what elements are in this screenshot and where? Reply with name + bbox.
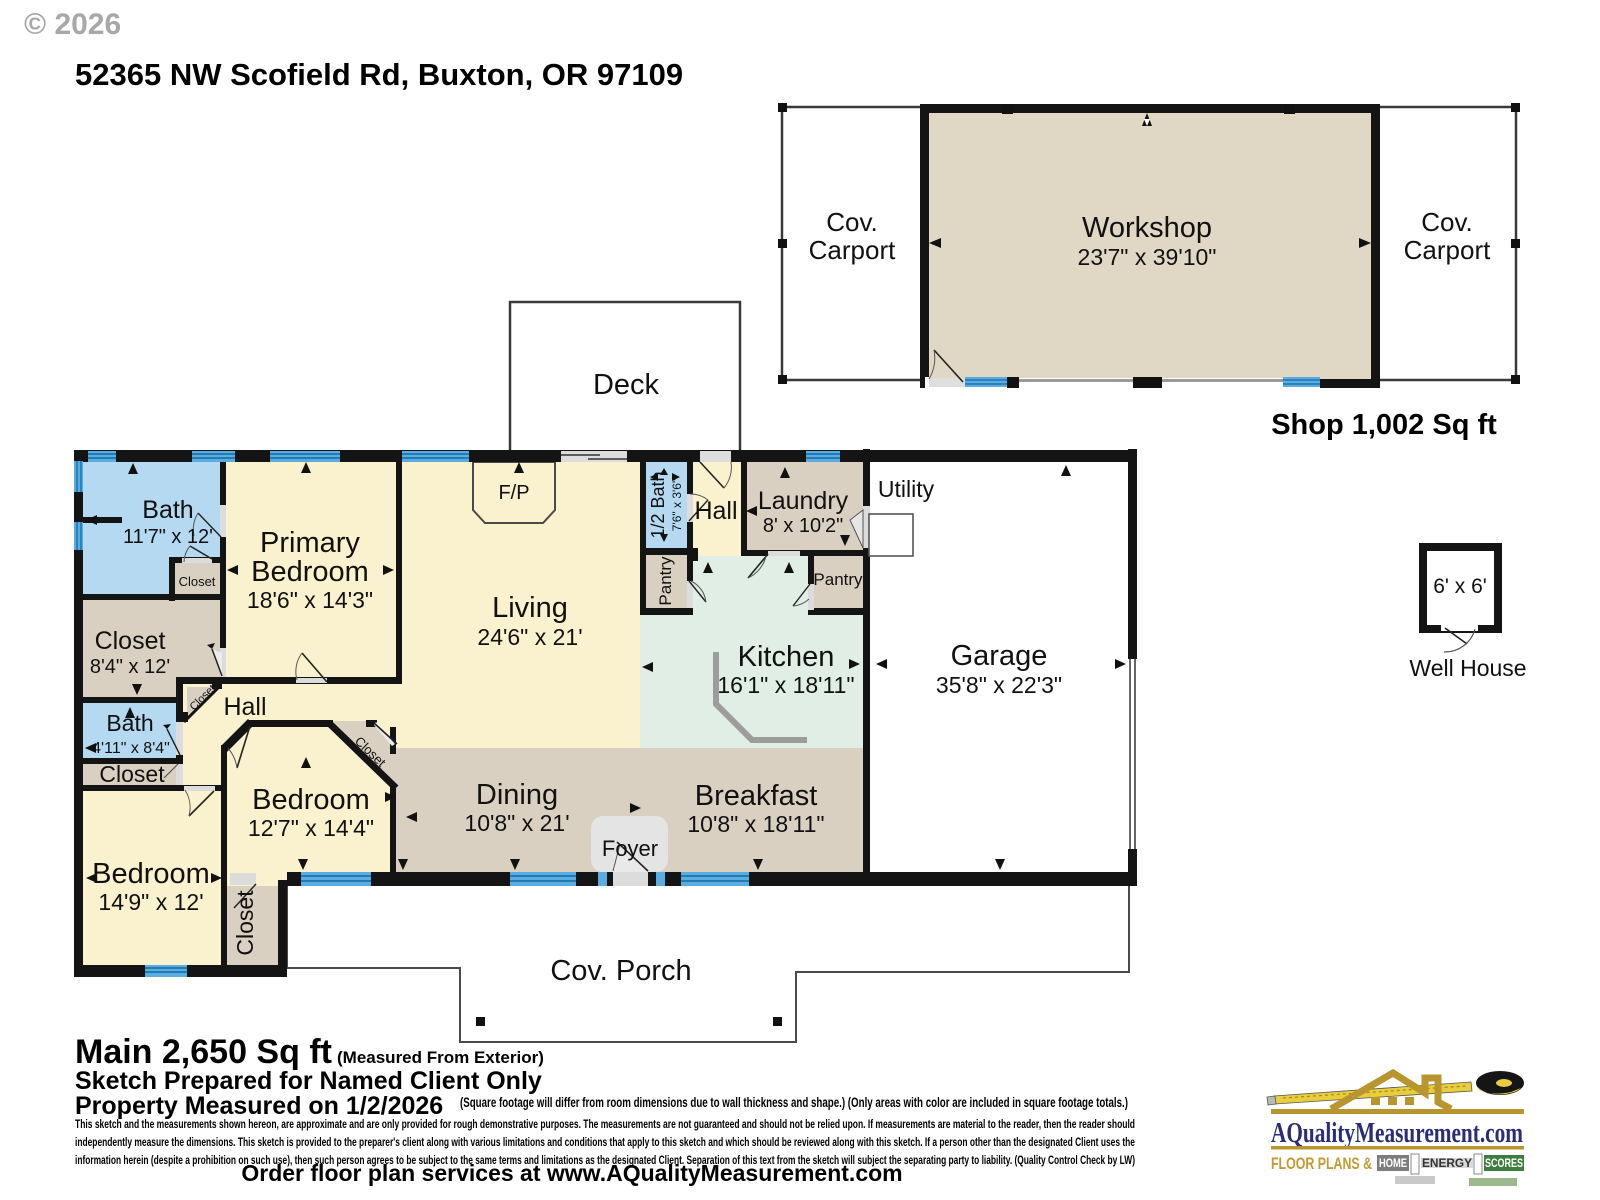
svg-text:35'8" x 22'3": 35'8" x 22'3": [936, 672, 1062, 698]
svg-text:© 2026: © 2026: [24, 8, 121, 41]
svg-text:Bath: Bath: [142, 496, 193, 524]
svg-text:Carport: Carport: [1404, 235, 1491, 265]
svg-text:23'7" x 39'10": 23'7" x 39'10": [1078, 244, 1217, 270]
svg-text:Cov. Porch: Cov. Porch: [550, 955, 691, 987]
svg-text:Property Measured on 1/2/2026: Property Measured on 1/2/2026: [75, 1092, 443, 1120]
svg-text:Foyer: Foyer: [602, 836, 658, 861]
svg-text:Utility: Utility: [878, 476, 935, 502]
svg-text:Shop 1,002 Sq ft: Shop 1,002 Sq ft: [1271, 409, 1497, 441]
svg-text:24'6" x 21': 24'6" x 21': [477, 624, 582, 650]
svg-text:7'6" x 3'6": 7'6" x 3'6": [670, 479, 684, 531]
svg-text:(Measured From Exterior): (Measured From Exterior): [337, 1048, 544, 1067]
svg-text:AQualityMeasurement.com: AQualityMeasurement.com: [1271, 1117, 1523, 1149]
svg-text:Main 2,650 Sq ft: Main 2,650 Sq ft: [75, 1033, 332, 1071]
svg-text:Sketch Prepared for Named Clie: Sketch Prepared for Named Client Only: [75, 1067, 542, 1095]
svg-text:Closet: Closet: [179, 574, 216, 589]
svg-text:Bath: Bath: [106, 710, 153, 736]
svg-text:8'4" x 12': 8'4" x 12': [90, 656, 170, 678]
svg-text:Kitchen: Kitchen: [738, 641, 835, 673]
svg-text:Order floor plan services at w: Order floor plan services at www.AQualit…: [241, 1160, 902, 1186]
svg-text:10'8" x 18'11": 10'8" x 18'11": [687, 811, 824, 837]
svg-text:Bedroom: Bedroom: [252, 784, 370, 816]
svg-text:Pantry: Pantry: [656, 556, 675, 606]
svg-text:This sketch and the measuremen: This sketch and the measurements shown h…: [75, 1118, 1135, 1131]
svg-text:6' x 6': 6' x 6': [1433, 575, 1487, 598]
svg-text:1/2 Bath: 1/2 Bath: [648, 471, 668, 538]
svg-text:12'7" x 14'4": 12'7" x 14'4": [248, 815, 374, 841]
svg-text:Workshop: Workshop: [1082, 212, 1212, 244]
svg-text:52365 NW Scofield Rd, Buxton,: 52365 NW Scofield Rd, Buxton, OR 97109: [75, 57, 683, 92]
svg-text:FLOOR PLANS &: FLOOR PLANS &: [1271, 1155, 1372, 1173]
svg-text:SCORES: SCORES: [1485, 1158, 1523, 1170]
svg-text:Laundry: Laundry: [758, 487, 849, 515]
svg-text:Deck: Deck: [593, 369, 660, 401]
svg-text:Closet: Closet: [232, 890, 258, 956]
svg-text:4'11" x 8'4": 4'11" x 8'4": [92, 740, 170, 757]
svg-text:16'1" x 18'11": 16'1" x 18'11": [717, 672, 854, 698]
svg-text:Dining: Dining: [476, 779, 558, 811]
svg-text:Bedroom: Bedroom: [251, 556, 369, 588]
svg-text:Primary: Primary: [260, 527, 360, 559]
svg-text:Living: Living: [492, 592, 568, 624]
svg-text:Garage: Garage: [951, 640, 1048, 672]
svg-text:Pantry: Pantry: [813, 570, 863, 589]
svg-text:Closet: Closet: [95, 627, 166, 655]
svg-text:(Square footage will differ fr: (Square footage will differ from room di…: [460, 1095, 1128, 1110]
svg-text:Closet: Closet: [99, 761, 165, 787]
svg-text:ENERGY: ENERGY: [1422, 1158, 1472, 1170]
svg-text:Breakfast: Breakfast: [695, 780, 818, 812]
svg-text:14'9" x 12': 14'9" x 12': [98, 889, 203, 915]
svg-text:11'7" x 12': 11'7" x 12': [123, 526, 213, 548]
svg-text:Cov.: Cov.: [826, 207, 878, 237]
svg-text:Hall: Hall: [694, 497, 737, 525]
svg-text:Well House: Well House: [1409, 655, 1526, 681]
svg-text:Carport: Carport: [809, 235, 896, 265]
svg-text:Cov.: Cov.: [1421, 207, 1473, 237]
svg-text:HOME: HOME: [1379, 1158, 1407, 1170]
svg-text:Hall: Hall: [223, 693, 266, 721]
svg-text:Bedroom: Bedroom: [92, 858, 210, 890]
svg-text:10'8" x 21': 10'8" x 21': [464, 810, 569, 836]
svg-text:18'6" x 14'3": 18'6" x 14'3": [247, 587, 373, 613]
svg-text:8' x 10'2": 8' x 10'2": [763, 515, 843, 537]
svg-text:F/P: F/P: [498, 482, 529, 504]
svg-text:independently measure the dime: independently measure the dimensions. Th…: [75, 1136, 1135, 1149]
